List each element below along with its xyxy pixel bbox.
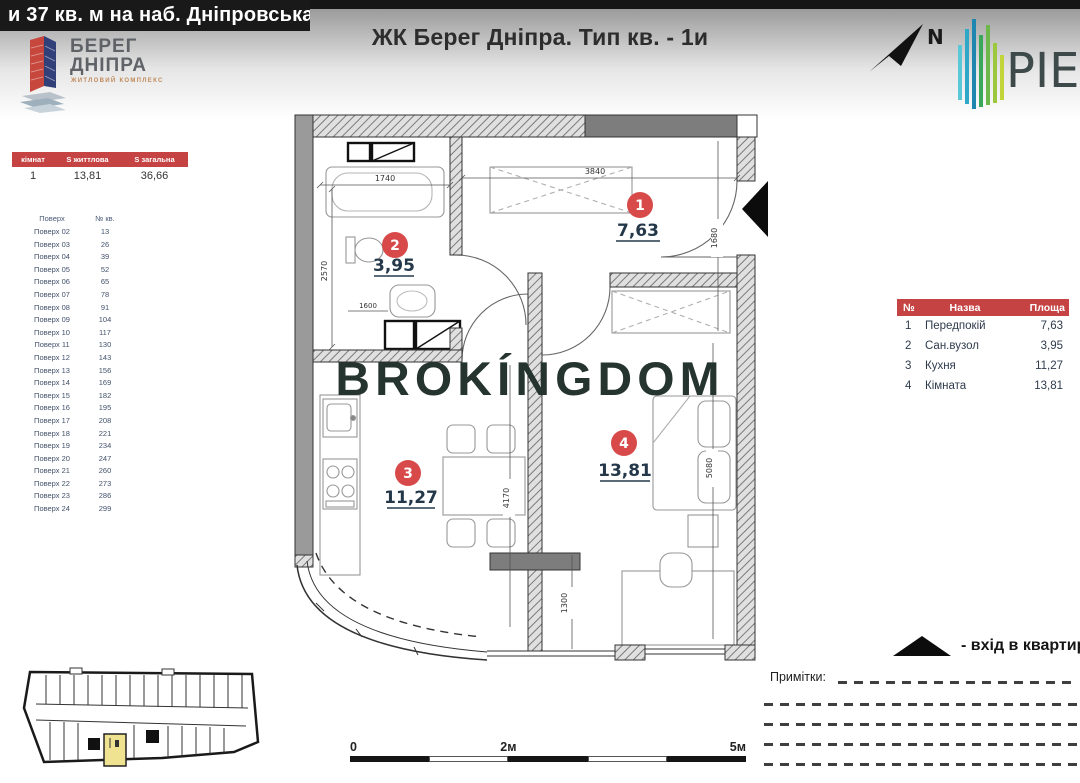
page-title: ЖК Берег Дніпра. Тип кв. - 1и: [300, 24, 780, 51]
floor-row: Поверх 14 169: [20, 378, 130, 391]
floor-row: Поверх 05 52: [20, 265, 130, 278]
summary-table-header: кімнатS життловаS загальна: [12, 152, 188, 167]
floor-row: Поверх 16 195: [20, 403, 130, 416]
floor-row: Поверх 24 299: [20, 504, 130, 517]
room-area-1: 7,63: [617, 221, 659, 241]
notes-line: [764, 703, 1078, 706]
room-area-3: 11,27: [384, 488, 438, 508]
rooms-table-rows: 1 Передпокій 7,63 2 Сан.вузол 3,95 3 Кух…: [897, 316, 1069, 396]
chair: [447, 425, 475, 453]
summary-header-cell: кімнат: [12, 155, 54, 164]
brand-name-line2: ДНІПРА: [70, 56, 147, 75]
north-arrow-icon: N: [855, 12, 950, 82]
rooms-table: №НазваПлоща 1 Передпокій 7,63 2 Сан.вузо…: [897, 299, 1069, 396]
summary-header-cell: S загальна: [121, 155, 188, 164]
floor-row: Поверх 04 39: [20, 252, 130, 265]
notes-label: Примітки:: [770, 670, 826, 684]
rooms-table-header-cell: Назва: [923, 302, 1007, 314]
dim-hall-width: 3840: [585, 167, 605, 176]
brand-subtitle: ЖИТЛОВИЙ КОМПЛЕКС: [71, 78, 164, 84]
floor-row: Поверх 21 260: [20, 466, 130, 479]
key-plan-core: [88, 738, 100, 750]
entrance-legend-label: - вхід в квартиру: [961, 637, 1080, 655]
svg-text:3: 3: [403, 466, 413, 482]
room-area-2: 3,95: [373, 256, 415, 276]
floor-row: Поверх 13 156: [20, 366, 130, 379]
rooms-table-row: 2 Сан.вузол 3,95: [897, 336, 1069, 356]
rooms-table-row: 3 Кухня 11,27: [897, 356, 1069, 376]
summary-value-cell: 1: [12, 170, 54, 182]
north-label: N: [927, 25, 944, 49]
summary-value-cell: 36,66: [121, 170, 188, 182]
washing-machine: [385, 321, 414, 349]
floor-row: Поверх 19 234: [20, 441, 130, 454]
room-area-4: 13,81: [598, 461, 652, 481]
notes-line: [764, 743, 1078, 746]
floor-row: Поверх 23 286: [20, 491, 130, 504]
summary-value-cell: 13,81: [54, 170, 121, 182]
floors-header-floor: Поверх: [20, 214, 84, 223]
floor-row: Поверх 08 91: [20, 303, 130, 316]
key-plan: [12, 642, 268, 782]
dim-bottom: 1300: [560, 593, 569, 613]
notes-line: [764, 763, 1078, 766]
dim-sink: 1600: [359, 302, 377, 310]
entrance-arrow-icon: [742, 181, 768, 237]
scale-label-0: 0: [350, 740, 357, 754]
floor-row: Поверх 07 78: [20, 290, 130, 303]
scale-bar: 0 2м 5м: [350, 740, 746, 770]
floor-row: Поверх 17 208: [20, 416, 130, 429]
entrance-legend: - вхід в квартиру: [893, 636, 1080, 656]
dim-kitchen-height: 4170: [502, 488, 511, 508]
floor-row: Поверх 11 130: [20, 340, 130, 353]
brand-name: БЕРЕГ ДНІПРА: [70, 37, 147, 75]
watermark: BROKÍNGDOM: [285, 351, 775, 406]
nightstand: [688, 515, 718, 547]
dim-room-height: 5080: [705, 458, 714, 478]
partner-logo-text: РІЕЛ: [1006, 43, 1080, 99]
partner-logo: РІЕЛ: [958, 15, 1080, 115]
brand-building-icon: [20, 34, 68, 114]
scale-bar-segments: [350, 756, 746, 762]
floors-rows: Поверх 02 13 Поверх 03 26 Поверх 04 39 П…: [20, 227, 130, 517]
floor-row: Поверх 06 65: [20, 277, 130, 290]
floors-header-apt: № кв.: [84, 214, 126, 223]
floor-row: Поверх 18 221: [20, 429, 130, 442]
floor-row: Поверх 12 143: [20, 353, 130, 366]
key-plan-highlighted-unit: [104, 734, 126, 766]
summary-header-cell: S життлова: [54, 155, 121, 164]
floor-row: Поверх 20 247: [20, 454, 130, 467]
rooms-table-header: №НазваПлоща: [897, 299, 1069, 316]
brand-name-line1: БЕРЕГ: [70, 37, 147, 56]
toilet: [346, 237, 355, 263]
notes-line: [838, 681, 1078, 684]
rooms-table-header-cell: №: [897, 302, 923, 314]
floor-row: Поверх 09 104: [20, 315, 130, 328]
entrance-triangle-icon: [893, 636, 951, 656]
dim-bath-width: 1740: [375, 174, 395, 183]
notes-line: [764, 723, 1078, 726]
desk-chair: [660, 553, 692, 587]
scale-label-2m: 2м: [500, 740, 516, 754]
floor-row: Поверх 02 13: [20, 227, 130, 240]
dim-entry: 1680: [710, 228, 719, 248]
key-plan-core-2: [146, 730, 159, 743]
floor-row: Поверх 22 273: [20, 479, 130, 492]
rooms-table-header-cell: Площа: [1007, 302, 1069, 314]
partner-logo-bars: [958, 19, 1004, 109]
rooms-table-row: 4 Кімната 13,81: [897, 376, 1069, 396]
svg-text:1: 1: [635, 198, 645, 214]
floors-table-header: Поверх № кв.: [20, 214, 130, 223]
summary-table-values: 113,8136,66: [12, 167, 188, 185]
listing-title: и 37 кв. м на наб. Дніпровська 17в: [0, 0, 310, 31]
summary-table: кімнатS життловаS загальна 113,8136,66: [12, 152, 188, 185]
floor-row: Поверх 10 117: [20, 328, 130, 341]
svg-text:2: 2: [390, 238, 400, 254]
dim-bath-height: 2570: [320, 261, 329, 281]
floor-row: Поверх 03 26: [20, 240, 130, 253]
floors-table: Поверх № кв. Поверх 02 13 Поверх 03 26 П…: [20, 214, 130, 517]
scale-label-5m: 5м: [730, 740, 746, 754]
rooms-table-row: 1 Передпокій 7,63: [897, 316, 1069, 336]
svg-text:4: 4: [619, 436, 629, 452]
floor-row: Поверх 15 182: [20, 391, 130, 404]
